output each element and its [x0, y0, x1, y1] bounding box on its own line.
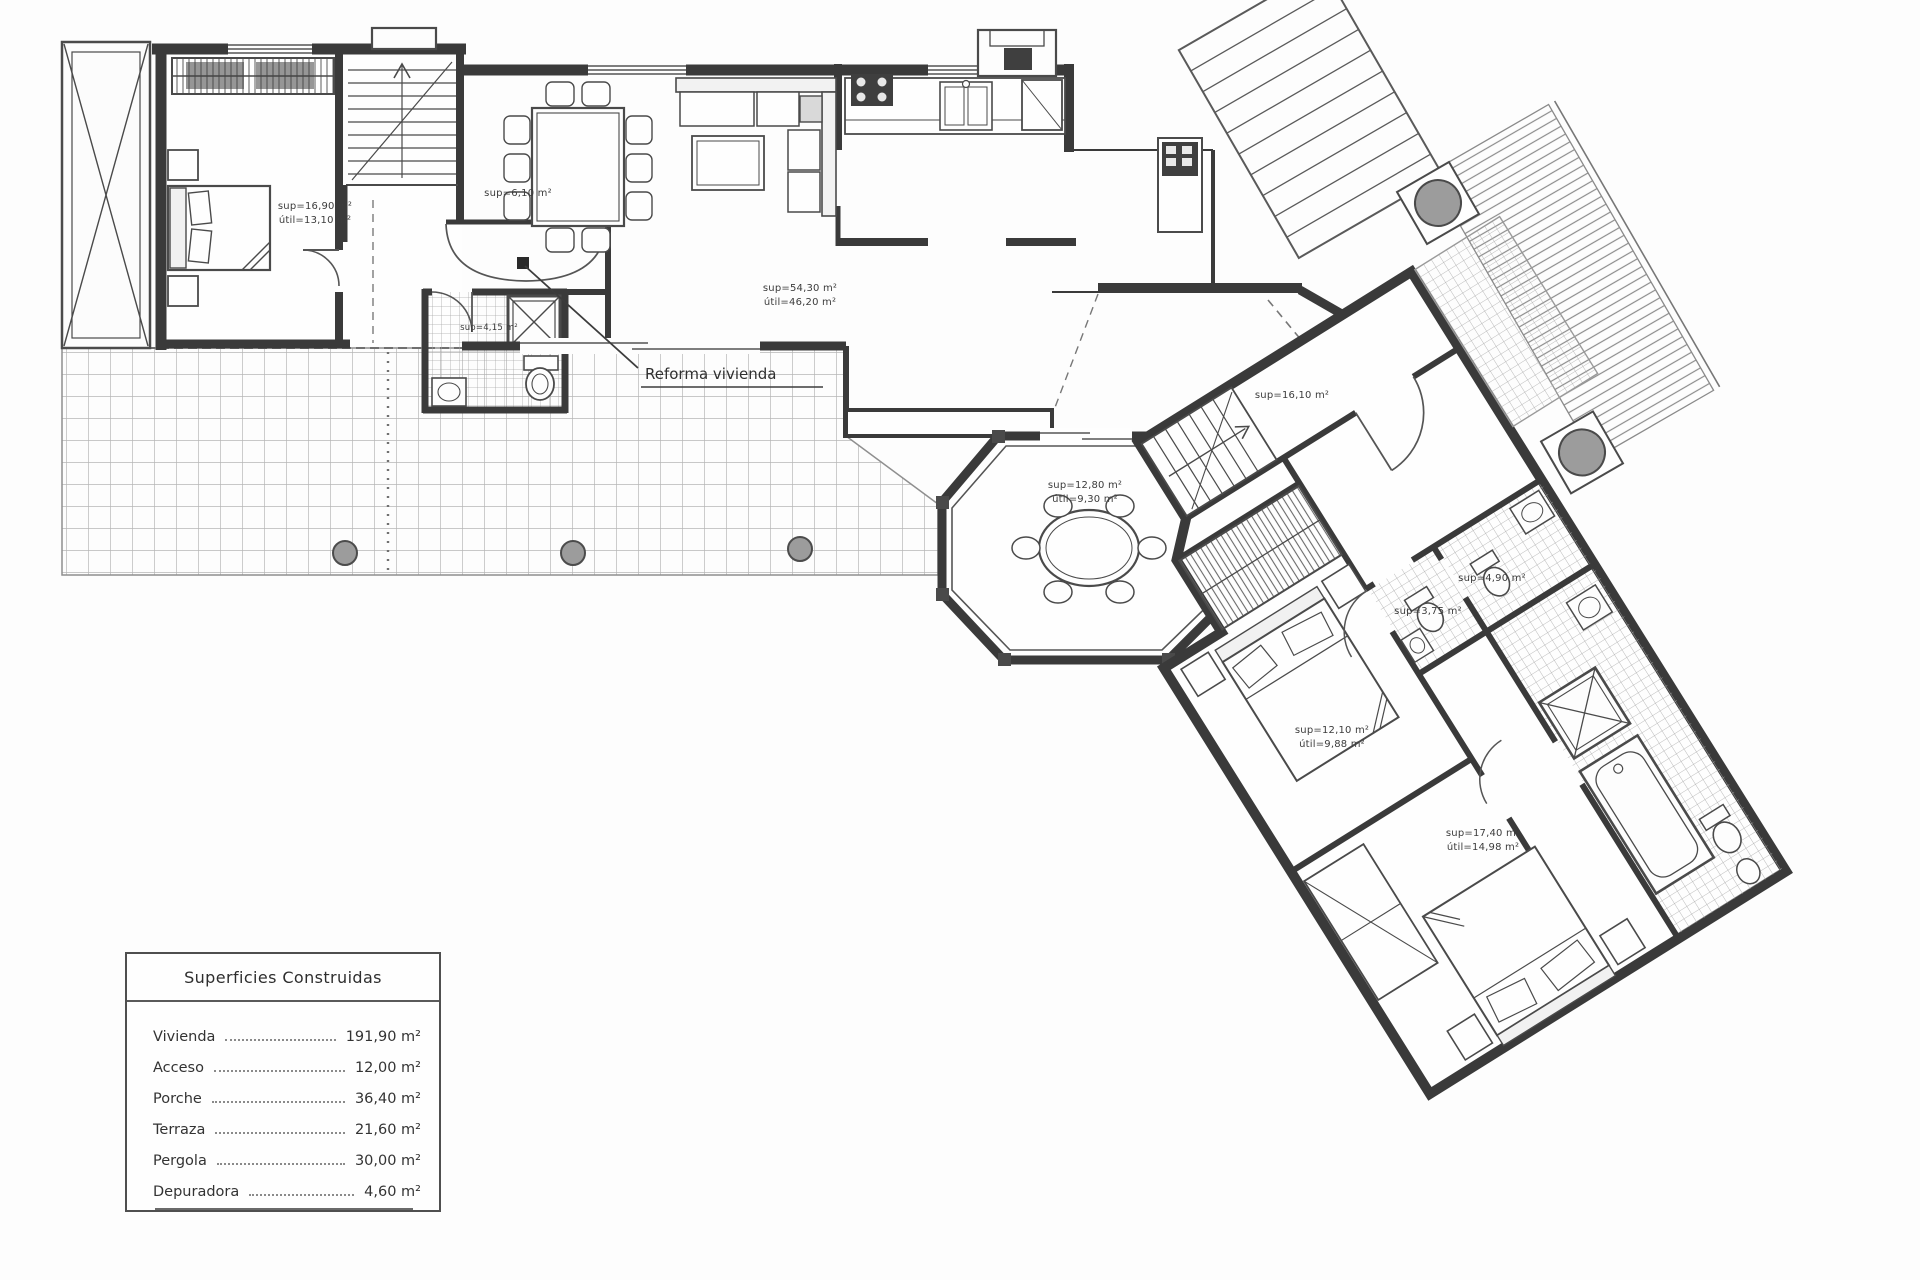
- roof-access: [372, 28, 436, 49]
- legend-label: Pergola: [153, 1153, 207, 1169]
- round-table-symbol: [1039, 510, 1139, 586]
- coffee-table-symbol: [692, 136, 764, 190]
- legend-value: 36,40 m²: [355, 1091, 421, 1107]
- doormat-icon: [1004, 48, 1032, 70]
- areas-legend: Superficies Construidas Vivienda 191,90 …: [125, 952, 441, 1212]
- top-porch: [978, 30, 1056, 76]
- bath1-label: sup=4,15 m²: [460, 323, 518, 333]
- sliding-door-icon: [520, 338, 760, 354]
- legend-value: 21,60 m²: [355, 1122, 421, 1138]
- roof-line-dashed: [1054, 294, 1098, 410]
- legend-row: Terraza 21,60 m²: [153, 1107, 421, 1138]
- gazebo-label: sup=12,80 m²: [1048, 480, 1122, 491]
- legend-label: Acceso: [153, 1060, 204, 1076]
- living-label: sup=54,30 m²: [763, 283, 837, 294]
- bedroom1-label2: útil=13,10 m²: [279, 214, 351, 226]
- legend-row: Porche 36,40 m²: [153, 1076, 421, 1107]
- window-icon: [228, 42, 312, 56]
- planter-icon: [788, 537, 812, 561]
- side-porch: [62, 42, 150, 348]
- planter-icon: [333, 541, 357, 565]
- sliding-door-icon: [1040, 428, 1132, 444]
- bedroom2-label: sup=12,10 m²: [1295, 725, 1369, 736]
- legend-leader: [212, 1101, 345, 1103]
- legend-row: Depuradora 4,60 m²: [153, 1169, 421, 1200]
- legend-leader: [217, 1163, 345, 1165]
- bedroom2-label2: útil=9,88 m²: [1299, 738, 1365, 750]
- living-label2: útil=46,20 m²: [764, 296, 836, 308]
- legend-footer-rule: [155, 1208, 413, 1230]
- kitchen-sink-symbol: [940, 81, 992, 131]
- gazebo-label2: útil=9,30 m²: [1052, 493, 1118, 505]
- bedroom3-label: sup=17,40 m²: [1446, 828, 1520, 839]
- dining-table-symbol: [504, 82, 652, 252]
- legend-leader: [225, 1039, 335, 1041]
- wc-label: sup=3,75 m²: [1394, 606, 1462, 617]
- reform-label: Reforma vivienda: [645, 365, 776, 383]
- hallway2-label: sup=16,10 m²: [1255, 390, 1329, 401]
- wardrobe-symbol: [172, 58, 334, 94]
- legend-leader: [214, 1070, 345, 1072]
- sink-symbol: [432, 378, 466, 406]
- bedroom-wing: [1055, 217, 1874, 1094]
- legend-value: 191,90 m²: [346, 1029, 421, 1045]
- legend-row: Pergola 30,00 m²: [153, 1138, 421, 1169]
- legend-leader: [249, 1194, 354, 1196]
- legend-label: Depuradora: [153, 1184, 239, 1200]
- exterior-stairs: [1179, 0, 1443, 258]
- hall-label: sup=6,10 m²: [484, 188, 552, 199]
- stove-symbol: [851, 74, 893, 106]
- legend-row: Acceso 12,00 m²: [153, 1045, 421, 1076]
- window-icon: [588, 62, 686, 78]
- legend-value: 4,60 m²: [364, 1184, 421, 1200]
- bedroom3-label2: útil=14,98 m²: [1447, 841, 1519, 853]
- pantry-unit: [1158, 138, 1202, 232]
- fridge-symbol: [1022, 80, 1062, 130]
- bath2-label: sup=4,90 m²: [1458, 573, 1526, 584]
- legend-leader: [215, 1132, 345, 1134]
- legend-label: Porche: [153, 1091, 202, 1107]
- legend-value: 30,00 m²: [355, 1153, 421, 1169]
- legend-title: Superficies Construidas: [127, 954, 439, 1002]
- legend-label: Vivienda: [153, 1029, 215, 1045]
- legend-row: Vivienda 191,90 m²: [153, 1014, 421, 1045]
- legend-label: Terraza: [153, 1122, 205, 1138]
- bedroom1-label: sup=16,90 m²: [278, 201, 352, 212]
- planter-icon: [561, 541, 585, 565]
- legend-value: 12,00 m²: [355, 1060, 421, 1076]
- floorplan-page: Reforma vivienda sup=16,90 m² útil=13,10…: [0, 0, 1920, 1280]
